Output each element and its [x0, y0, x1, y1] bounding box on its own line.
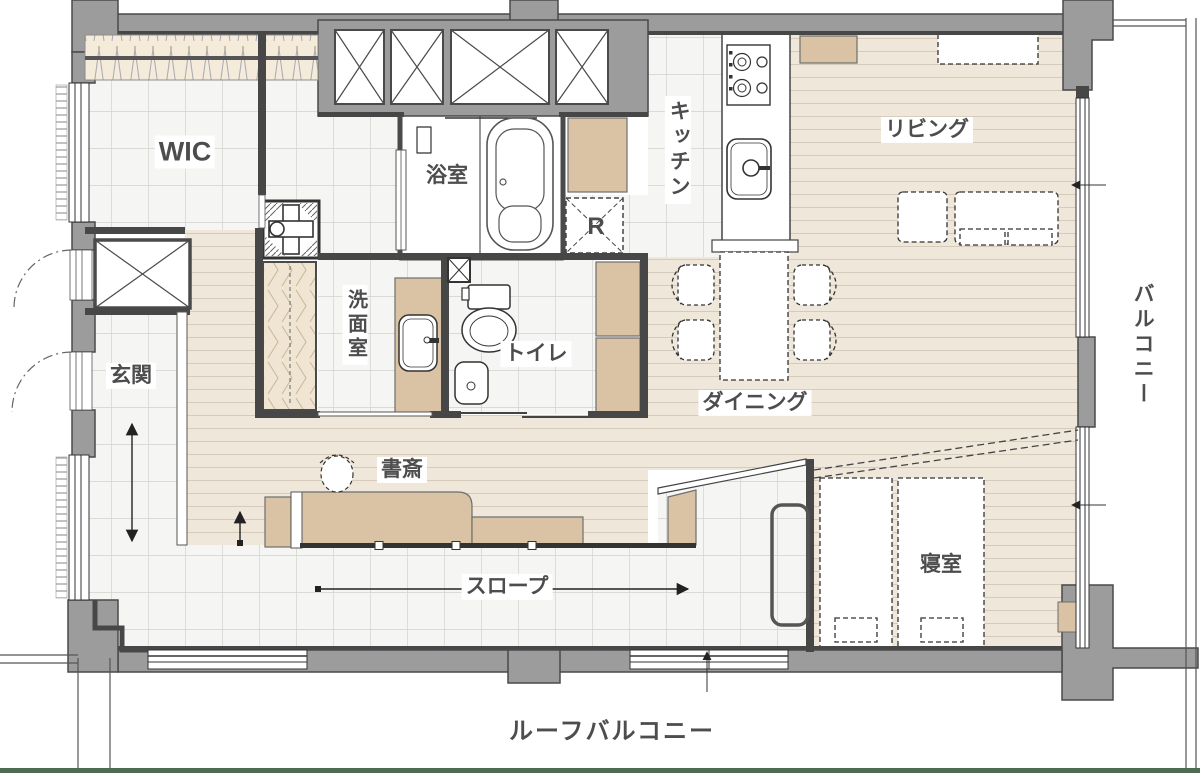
counter-overhang [712, 240, 798, 252]
pillow [921, 618, 963, 642]
study-desk-extension [472, 517, 583, 545]
sink-icon [399, 315, 439, 371]
desk-divider [291, 492, 302, 548]
room-label-bathroom: 浴室 [422, 163, 472, 189]
room-label-living: リビング [881, 117, 973, 143]
gas-stove-icon [727, 45, 770, 105]
room-label-study: 書斎 [377, 457, 427, 483]
chair-icon [794, 265, 830, 305]
sofa-cushion [960, 229, 1005, 245]
desk-cabinet [265, 497, 291, 547]
page-bottom-border [0, 768, 1200, 773]
entrance-step [177, 312, 187, 545]
slope-floor [85, 545, 662, 651]
room-label-kitchen: キッチン [665, 96, 691, 204]
left-window [56, 83, 89, 222]
room-label-refrigerator: R [583, 212, 608, 242]
room-label-washroom: 洗面室 [343, 285, 368, 365]
room-label-toilet: トイレ [501, 341, 572, 367]
pipe-shaft-icon [335, 30, 608, 104]
room-label-slope: スロープ [462, 574, 553, 600]
slope-landing-floor [658, 463, 806, 650]
small-sink-icon [455, 362, 488, 404]
room-label-wic: WIC [155, 135, 215, 168]
toilet-cabinet [596, 262, 640, 336]
bath-mixer-icon [417, 127, 431, 153]
left-window [56, 455, 89, 600]
study-desk [302, 492, 472, 545]
washroom-door [318, 412, 432, 416]
tv-board-icon [938, 33, 1038, 64]
bathtub-icon [487, 118, 553, 250]
living-cabinet [800, 36, 857, 63]
chair-icon [678, 320, 714, 360]
room-label-entrance: 玄関 [106, 363, 156, 389]
washing-machine-pan-icon [263, 201, 319, 258]
armchair-icon [898, 192, 947, 242]
kitchen-sink-icon [727, 139, 771, 199]
room-label-roof-balcony: ルーフバルコニー [505, 717, 719, 747]
room-label-bedroom: 寝室 [916, 552, 966, 578]
pillow [835, 618, 877, 642]
desk-rail [300, 543, 696, 548]
dining-table-icon [720, 252, 788, 380]
chair-icon [794, 320, 830, 360]
desk-wedge [668, 490, 696, 545]
toilet-cabinet [596, 338, 640, 412]
sofa-cushion [1008, 229, 1052, 245]
right-wall-segment [1078, 337, 1095, 427]
floor-plan-page: WIC 浴室 キッチン リビング バルコニー R 洗面室 トイレ ダイニング 玄… [0, 0, 1200, 773]
chair-icon [678, 265, 714, 305]
room-label-dining: ダイニング [699, 390, 812, 416]
corner-column [1063, 0, 1113, 90]
room-label-balcony: バルコニー [1129, 279, 1155, 412]
corridor-floor [185, 228, 263, 428]
wic-door [259, 195, 265, 228]
floor-plan-drawing [0, 0, 1200, 773]
cupboard [568, 118, 627, 192]
